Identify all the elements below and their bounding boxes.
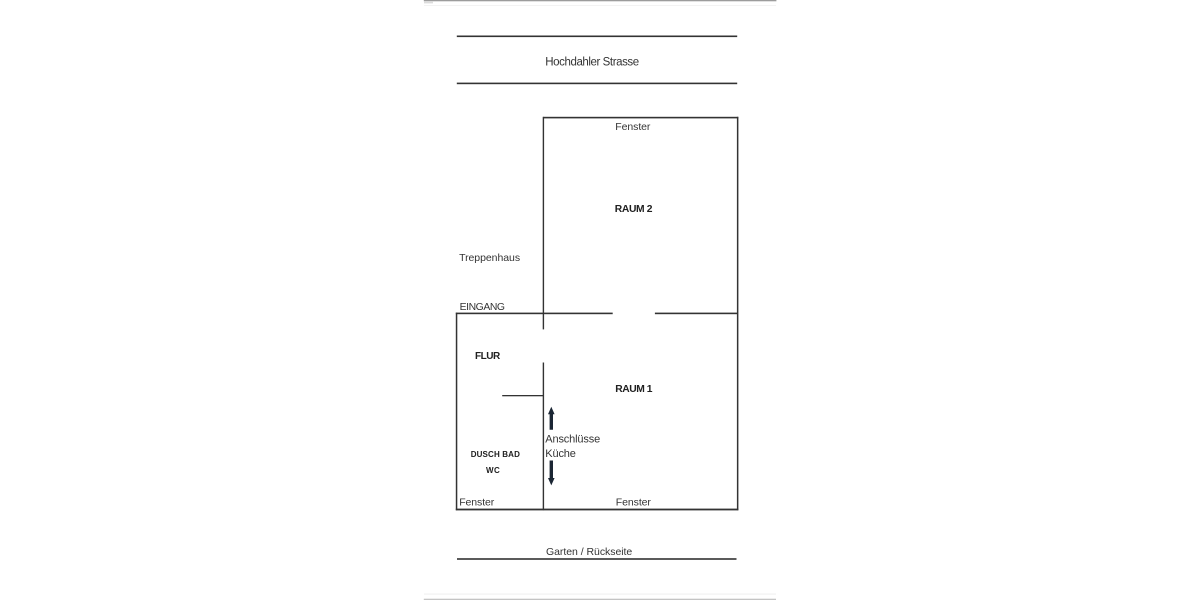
svg-text:Fenster: Fenster — [459, 497, 495, 509]
svg-text:Treppenhaus: Treppenhaus — [459, 252, 520, 264]
svg-text:Küche: Küche — [545, 448, 575, 460]
svg-text:EINGANG: EINGANG — [460, 302, 505, 313]
svg-text:RAUM 2: RAUM 2 — [615, 204, 653, 215]
svg-text:FLUR: FLUR — [475, 351, 501, 362]
svg-text:DUSCH BAD: DUSCH BAD — [471, 450, 520, 459]
svg-text:Fenster: Fenster — [615, 121, 651, 133]
svg-text:WC: WC — [486, 466, 500, 475]
svg-text:Fenster: Fenster — [616, 497, 652, 509]
svg-text:Garten / Rückseite: Garten / Rückseite — [546, 546, 632, 558]
svg-text:Hochdahler Strasse: Hochdahler Strasse — [545, 56, 638, 68]
svg-text:RAUM 1: RAUM 1 — [615, 384, 652, 395]
svg-text:Anschlüsse: Anschlüsse — [545, 434, 600, 446]
